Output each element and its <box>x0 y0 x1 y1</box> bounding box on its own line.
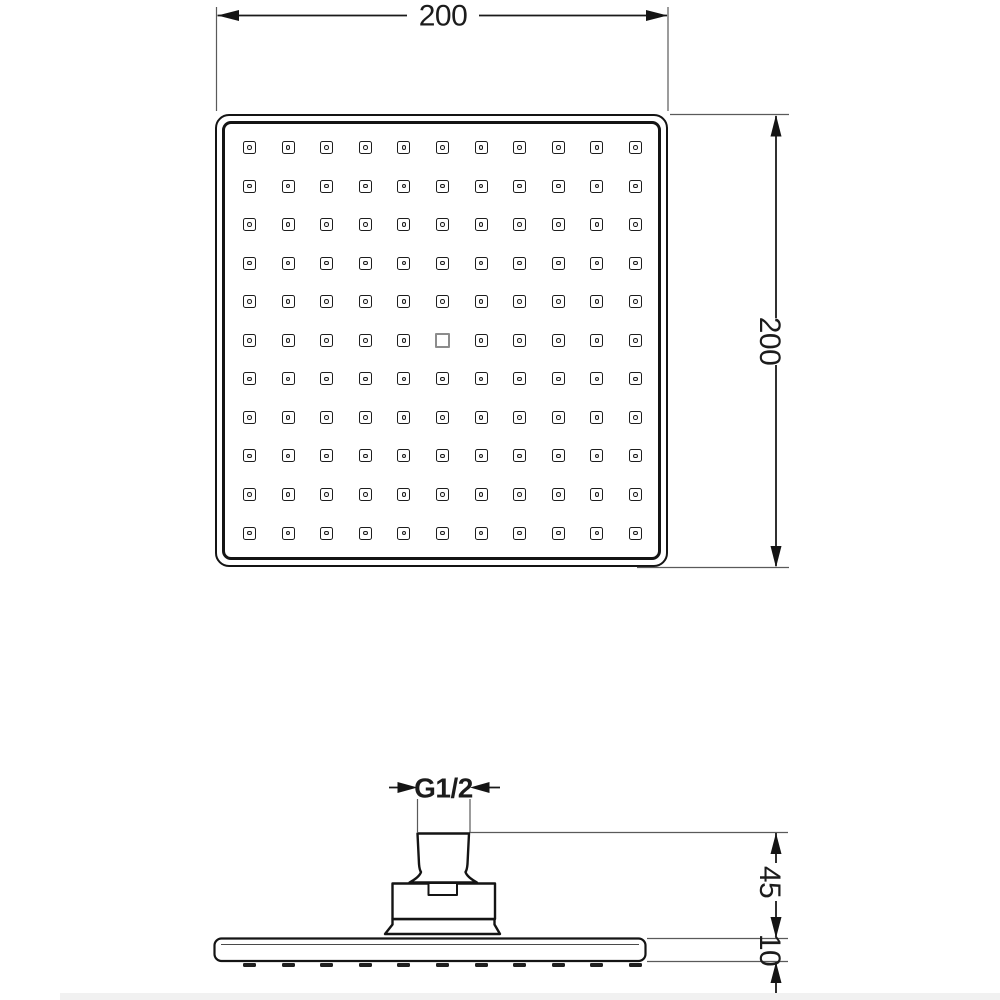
dimension-mount-height: 45 <box>647 833 788 939</box>
dimension-top-width: 200 <box>217 0 669 111</box>
dimension-right-height: 200 <box>637 115 789 568</box>
arrow-left-icon <box>218 10 240 21</box>
thread-nipple <box>410 834 478 883</box>
technical-drawing: 200 200 <box>0 0 1000 1000</box>
arrow-up-icon <box>771 115 782 137</box>
extension-line <box>418 799 471 832</box>
dimension-plate-thickness: 10 <box>647 934 788 998</box>
plate-thickness-label: 10 <box>753 934 786 966</box>
drawing-linework: 200 200 <box>0 0 1000 1000</box>
arrow-up-icon <box>771 833 782 854</box>
side-view <box>215 833 789 962</box>
top-width-label: 200 <box>419 0 468 33</box>
arrow-down-icon <box>771 546 782 568</box>
dimension-thread: G1/2 <box>389 773 500 833</box>
arrow-left-icon <box>470 782 490 793</box>
mount-height-label: 45 <box>753 866 786 898</box>
mount-skirt <box>385 919 500 934</box>
shower-plate <box>215 939 646 962</box>
mount-notch <box>429 884 458 895</box>
arrow-right-icon <box>646 10 668 21</box>
right-height-label: 200 <box>753 317 786 366</box>
thread-size-label: G1/2 <box>414 773 473 804</box>
page-edge-strip <box>60 993 1000 1000</box>
